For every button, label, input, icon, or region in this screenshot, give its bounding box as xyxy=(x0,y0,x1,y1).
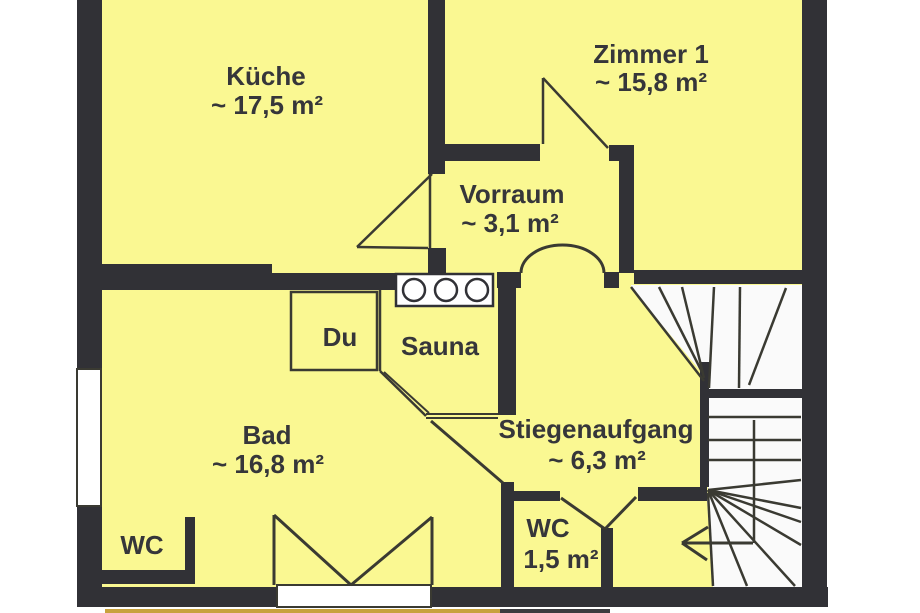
svg-text:1,5 m²: 1,5 m² xyxy=(523,544,598,574)
svg-text:~ 15,8 m²: ~ 15,8 m² xyxy=(595,67,707,97)
svg-text:Zimmer 1: Zimmer 1 xyxy=(593,39,709,69)
svg-text:~ 6,3 m²: ~ 6,3 m² xyxy=(548,445,646,475)
svg-text:Vorraum: Vorraum xyxy=(460,179,565,209)
svg-text:~ 17,5 m²: ~ 17,5 m² xyxy=(211,90,323,120)
svg-text:WC: WC xyxy=(120,530,164,560)
svg-text:Bad: Bad xyxy=(242,420,291,450)
svg-text:~ 3,1 m²: ~ 3,1 m² xyxy=(461,208,559,238)
svg-text:WC: WC xyxy=(526,513,570,543)
svg-text:~ 16,8 m²: ~ 16,8 m² xyxy=(212,449,324,479)
svg-text:Stiegenaufgang: Stiegenaufgang xyxy=(498,414,693,444)
svg-text:Sauna: Sauna xyxy=(401,331,480,361)
svg-text:Küche: Küche xyxy=(226,61,305,91)
svg-text:Du: Du xyxy=(323,322,358,352)
